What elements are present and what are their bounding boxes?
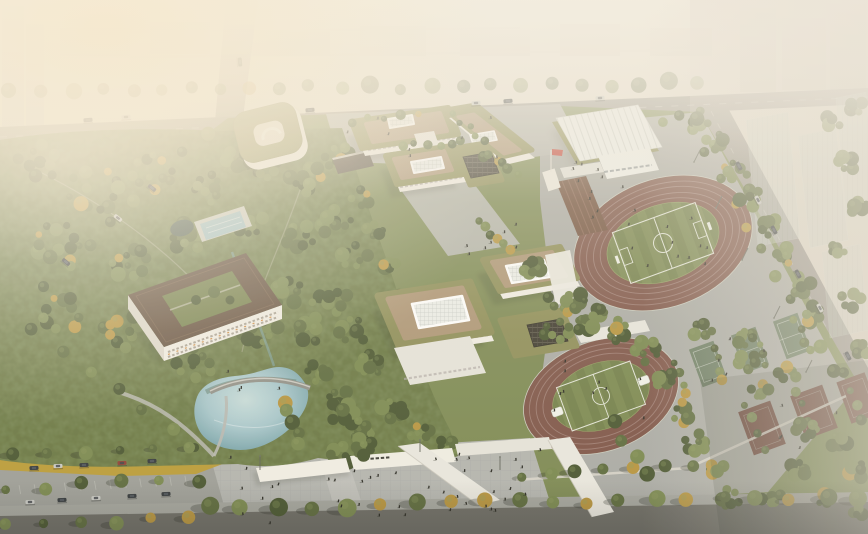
campus-aerial-rendering bbox=[0, 0, 868, 534]
render-canvas bbox=[0, 0, 868, 534]
atmospheric-haze bbox=[0, 0, 868, 534]
